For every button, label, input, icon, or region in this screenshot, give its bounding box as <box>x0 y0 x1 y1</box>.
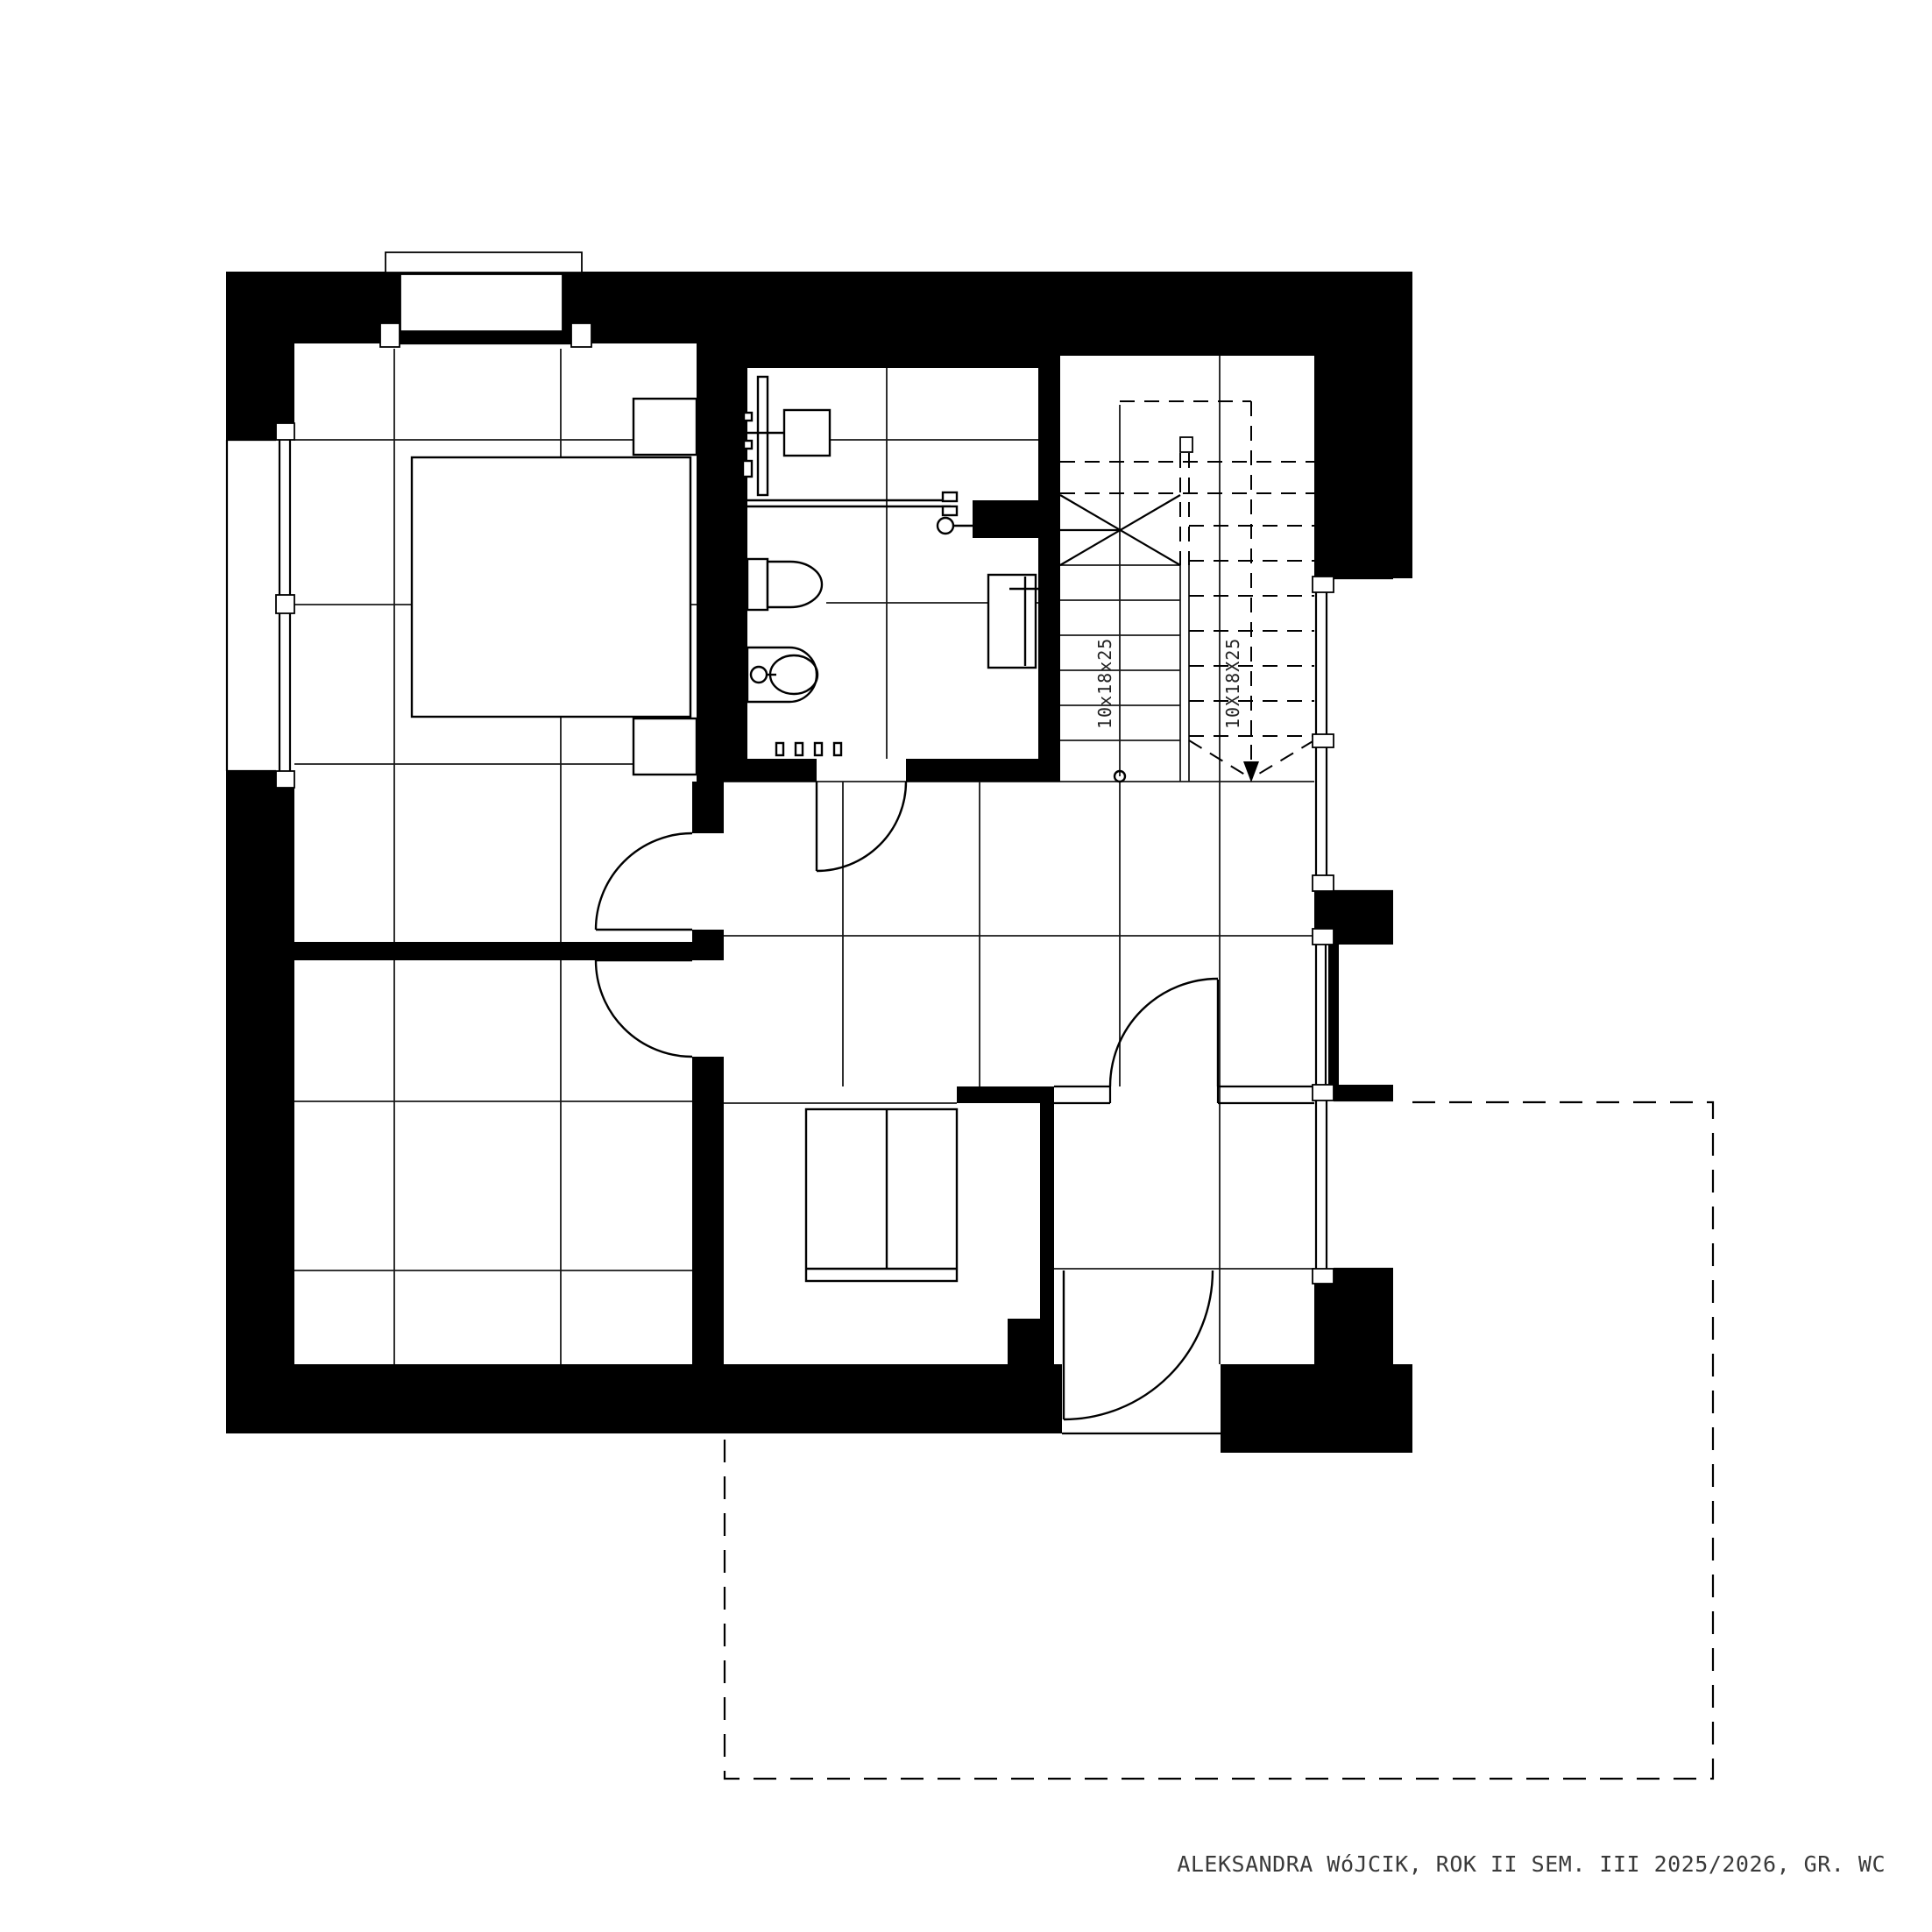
door-room-lower-left <box>596 960 692 1057</box>
toilet <box>747 559 822 610</box>
window-hall-block-top <box>1313 929 1334 945</box>
wall-right-strip <box>1328 945 1339 1085</box>
window-entry-glazing <box>1316 1100 1393 1269</box>
shower-head <box>784 410 830 456</box>
wall-bathroom-stair <box>1038 356 1060 782</box>
wall-corner-bottom-right <box>1221 1364 1412 1453</box>
window-left-block-top <box>276 423 294 440</box>
bidet-tap-knob <box>751 667 767 683</box>
floor-plan-page: 10x18x25 10X18X25 <box>0 0 1932 1932</box>
shower-valve-1 <box>744 413 752 421</box>
door-main-entrance <box>1064 1270 1213 1419</box>
floor-plan-drawing: 10x18x25 10X18X25 <box>0 0 1932 1932</box>
wall-top-bathroom <box>747 272 1060 368</box>
window-top-block-left <box>380 323 400 347</box>
wall-bathroom-bottom-left <box>697 759 817 782</box>
window-stair-block-mid <box>1313 734 1334 747</box>
nightstand-bottom <box>633 718 697 775</box>
staircase: 10x18x25 10X18X25 <box>1060 401 1314 782</box>
wall-partition-seg-3 <box>692 1057 724 1364</box>
window-top-outer-sill <box>386 252 582 272</box>
wall-bedroom-bathroom <box>697 343 747 782</box>
shower-valve-3 <box>743 461 752 477</box>
tap <box>938 518 974 534</box>
door-bathroom <box>817 782 906 871</box>
wall-corner-top-right <box>1314 272 1412 578</box>
stair-direction-arrowhead <box>1243 761 1259 782</box>
wall-hooks <box>776 743 841 755</box>
wall-hall-entry-cap <box>957 1086 1054 1103</box>
caption: ALEKSANDRA WóJCIK, ROK II SEM. III 2025/… <box>1177 1851 1886 1877</box>
shower <box>743 377 957 515</box>
stair-flight-label-left: 10x18x25 <box>1094 638 1115 729</box>
toilet-tank <box>747 559 768 610</box>
bidet <box>747 648 817 702</box>
wall-bottom <box>226 1364 1062 1433</box>
wall-partition-seg-1 <box>692 782 724 833</box>
shower-glass-panel <box>758 377 768 495</box>
window-top-bay <box>400 274 563 331</box>
window-stair-block-top <box>1313 577 1334 592</box>
toilet-bowl <box>768 562 822 607</box>
wall-entry-stub <box>1008 1319 1054 1364</box>
window-stair-block-bottom <box>1313 875 1334 891</box>
wall-bedroom-divider <box>294 942 692 960</box>
stair-newel <box>1180 437 1192 452</box>
window-top-block-right <box>571 323 591 347</box>
desk <box>806 1109 957 1281</box>
nightstand-top <box>633 399 697 455</box>
window-left-block-mid <box>276 595 294 613</box>
wall-partition-seg-2 <box>692 930 724 960</box>
wall-bathroom-bottom-right <box>906 759 1038 782</box>
door-bedroom <box>596 833 692 930</box>
window-hall-glazing <box>1316 945 1326 1085</box>
window-hall-block-bottom <box>1313 1085 1334 1100</box>
wall-shower-stub <box>973 500 1038 538</box>
window-entry-block-bottom <box>1313 1269 1334 1284</box>
shower-screen-hinge-1 <box>943 492 957 501</box>
shower-valve-2 <box>744 441 752 449</box>
stair-flight-label-right: 10X18X25 <box>1222 638 1243 729</box>
window-left-block-bottom <box>276 771 294 788</box>
shower-screen-hinge-2 <box>943 506 957 515</box>
doors <box>596 782 1218 1419</box>
washbasin <box>988 575 1038 668</box>
door-hall-entry <box>1110 979 1218 1086</box>
bed <box>412 457 690 717</box>
wall-top-stair <box>1060 272 1314 356</box>
